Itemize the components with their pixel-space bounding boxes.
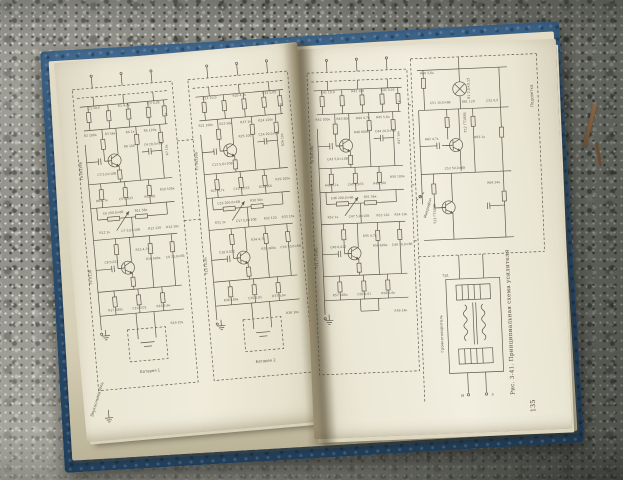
svg-text:R46 600к: R46 600к xyxy=(354,130,369,135)
svg-text:Т13 ГТ403Б: Т13 ГТ403Б xyxy=(432,203,437,225)
svg-text:R22 56к: R22 56к xyxy=(219,121,232,126)
svg-text:С47 5,0×10В: С47 5,0×10В xyxy=(349,214,370,219)
svg-text:R48 4,7к: R48 4,7к xyxy=(325,183,339,188)
svg-text:R44 4,7к: R44 4,7к xyxy=(356,116,370,121)
svg-text:R18 5,6к: R18 5,6к xyxy=(156,303,170,308)
svg-text:Батарея 2: Батарея 2 xyxy=(255,357,276,364)
svg-text:С12 0,05: С12 0,05 xyxy=(262,90,276,95)
svg-text:R62 4,7к: R62 4,7к xyxy=(425,137,439,142)
svg-text:R36 180к: R36 180к xyxy=(224,297,239,302)
right-page-schematic: Т8 МП39БТ11 ГТ108БС41 10,0R41 100С42 0,0… xyxy=(298,39,572,439)
svg-text:С4 20,0×6В: С4 20,0×6В xyxy=(144,141,163,147)
svg-text:Л1 2,5×0,15: Л1 2,5×0,15 xyxy=(466,78,471,100)
svg-text:С8 0,022: С8 0,022 xyxy=(104,259,118,264)
svg-text:R30 56к: R30 56к xyxy=(250,198,263,203)
svg-text:Т10 П13Б: Т10 П13Б xyxy=(203,257,209,276)
svg-text:R11 56к: R11 56к xyxy=(134,208,147,213)
svg-text:R41 100: R41 100 xyxy=(351,89,364,94)
svg-text:R63 1к: R63 1к xyxy=(474,135,485,139)
svg-text:Громкоговоритель: Громкоговоритель xyxy=(438,314,445,352)
svg-text:R35 600к: R35 600к xyxy=(261,246,276,251)
svg-text:С43 5,0×10В: С43 5,0×10В xyxy=(327,157,348,162)
svg-text:R49 560: R49 560 xyxy=(373,181,386,186)
svg-text:R12 1к: R12 1к xyxy=(99,230,110,235)
svg-text:С19 30,0×6В: С19 30,0×6В xyxy=(280,244,301,250)
svg-text:R55 4,7к: R55 4,7к xyxy=(363,233,377,238)
svg-text:Т9 П13Б: Т9 П13Б xyxy=(88,269,93,286)
svg-text:С17 5,0×10В: С17 5,0×10В xyxy=(236,217,257,223)
svg-text:R34 4,7к: R34 4,7к xyxy=(251,237,265,242)
svg-text:С2 0,05: С2 0,05 xyxy=(148,100,160,105)
svg-text:R52 1к: R52 1к xyxy=(327,215,338,219)
svg-text:Т12 ГТ108Б: Т12 ГТ108Б xyxy=(463,111,468,133)
svg-text:R17 180к: R17 180к xyxy=(108,307,123,312)
left-page-schematic: Батарея 1Т6 МП39БТ9 П13БС1 10,0R1 4,7кС2… xyxy=(54,42,330,442)
right-page: Т8 МП39БТ11 ГТ108БС41 10,0R41 100С42 0,0… xyxy=(298,39,572,439)
svg-text:R14 10к: R14 10к xyxy=(166,224,179,229)
svg-text:С1 10,0: С1 10,0 xyxy=(88,106,100,111)
svg-text:R21 100к: R21 100к xyxy=(198,123,213,128)
svg-text:R33 10к: R33 10к xyxy=(282,214,295,219)
svg-text:R10 100к: R10 100к xyxy=(160,186,175,191)
svg-text:R60 5,6к: R60 5,6к xyxy=(420,71,434,76)
svg-text:Подсветка: Подсветка xyxy=(529,84,535,107)
svg-text:R19 10к: R19 10к xyxy=(170,320,183,325)
twig-small xyxy=(595,142,602,166)
svg-text:R7 10к: R7 10к xyxy=(164,144,169,155)
svg-text:С41 10,0: С41 10,0 xyxy=(321,90,335,95)
svg-text:R13 120: R13 120 xyxy=(148,226,161,231)
svg-text:С14 20,0×6В: С14 20,0×6В xyxy=(258,131,279,137)
svg-text:С13 5,0×10В: С13 5,0×10В xyxy=(212,161,233,167)
svg-text:R24 120к: R24 120к xyxy=(258,117,273,122)
svg-text:Микрофон: Микрофон xyxy=(422,197,433,219)
svg-text:R28 560: R28 560 xyxy=(259,184,272,189)
svg-text:С51 10,0×6В: С51 10,0×6В xyxy=(430,100,451,105)
svg-text:С18 0,022: С18 0,022 xyxy=(219,249,235,254)
svg-text:R23 1к: R23 1к xyxy=(240,119,251,124)
svg-text:R31 1к: R31 1к xyxy=(215,220,226,225)
svg-text:R16 600к: R16 600к xyxy=(146,256,161,261)
svg-text:Звукосниматель: Звукосниматель xyxy=(89,381,105,418)
svg-text:R61 120: R61 120 xyxy=(462,99,475,104)
svg-text:Тр1: Тр1 xyxy=(441,273,449,277)
svg-text:С44 20,0×6В: С44 20,0×6В xyxy=(375,129,396,134)
svg-text:Т8 МП39Б: Т8 МП39Б xyxy=(310,145,315,165)
svg-text:Т11 ГТ108Б: Т11 ГТ108Б xyxy=(314,247,319,270)
svg-text:R58 5,6к: R58 5,6к xyxy=(381,291,395,296)
twig xyxy=(583,103,598,147)
svg-text:R8 4,7к: R8 4,7к xyxy=(96,198,108,203)
svg-text:З: З xyxy=(491,393,494,397)
svg-text:R9 560: R9 560 xyxy=(144,194,155,199)
svg-text:R29 100к: R29 100к xyxy=(275,176,290,181)
svg-text:С52 0,5: С52 0,5 xyxy=(486,98,498,103)
concrete-pavement: Батарея 1Т6 МП39БТ9 П13БС1 10,0R1 4,7кС2… xyxy=(0,0,623,480)
svg-text:R32 120: R32 120 xyxy=(264,216,277,221)
page-number: 135 xyxy=(529,399,538,412)
svg-text:М: М xyxy=(461,394,464,398)
svg-text:R57 180к: R57 180к xyxy=(333,293,348,298)
svg-text:R50 100к: R50 100к xyxy=(390,174,405,179)
svg-text:С7 5,0×10В: С7 5,0×10В xyxy=(121,227,140,233)
svg-text:R59 24к: R59 24к xyxy=(394,308,407,313)
svg-text:Т6 МП39Б: Т6 МП39Б xyxy=(79,161,85,181)
svg-text:Т7 МП39Б: Т7 МП39Б xyxy=(194,151,200,171)
svg-text:R42 100к: R42 100к xyxy=(315,117,330,122)
svg-text:R53 120: R53 120 xyxy=(376,213,389,218)
svg-text:R47 10к: R47 10к xyxy=(396,131,401,144)
svg-text:R4 1к: R4 1к xyxy=(126,130,135,135)
svg-text:R64 24к: R64 24к xyxy=(487,180,500,185)
svg-text:R43 60к: R43 60к xyxy=(336,116,349,121)
svg-text:R37 5,6к: R37 5,6к xyxy=(272,293,286,298)
svg-text:С53 50,0×6В: С53 50,0×6В xyxy=(445,166,466,171)
svg-text:R5 120к: R5 120к xyxy=(144,128,157,133)
left-page: Батарея 1Т6 МП39БТ9 П13БС1 10,0R1 4,7кС2… xyxy=(54,42,330,442)
svg-text:R3 56к: R3 56к xyxy=(105,131,116,136)
svg-text:R26 10к: R26 10к xyxy=(280,133,285,146)
svg-text:С15 0,033: С15 0,033 xyxy=(233,186,249,191)
svg-text:R15 4,7к: R15 4,7к xyxy=(135,247,149,252)
svg-text:С45 0,033: С45 0,033 xyxy=(348,182,364,187)
svg-text:С10 0,01: С10 0,01 xyxy=(132,305,146,310)
svg-text:R27 4,7к: R27 4,7к xyxy=(211,188,225,193)
svg-text:С3 5,0×10В: С3 5,0×10В xyxy=(97,171,116,177)
svg-text:С11 10,0: С11 10,0 xyxy=(202,95,216,100)
svg-text:R45 5,6к: R45 5,6к xyxy=(376,115,390,120)
svg-text:С6 200,0×6В: С6 200,0×6В xyxy=(103,210,124,216)
svg-text:С42 0,05: С42 0,05 xyxy=(381,88,395,93)
svg-text:R38 10к: R38 10к xyxy=(286,310,299,315)
svg-text:в: в xyxy=(397,100,401,102)
svg-text:С48 0,022: С48 0,022 xyxy=(330,245,346,250)
svg-text:С20 0,01: С20 0,01 xyxy=(248,295,262,300)
svg-text:С9 30,0×6В: С9 30,0×6В xyxy=(166,254,185,260)
svg-text:R51 56к: R51 56к xyxy=(364,194,377,199)
svg-text:R6 100: R6 100 xyxy=(124,144,135,149)
svg-text:R20 4,7к: R20 4,7к xyxy=(232,93,246,98)
svg-text:R2 100к: R2 100к xyxy=(84,133,97,138)
svg-text:С46 200,0×6В: С46 200,0×6В xyxy=(331,195,354,200)
svg-text:R56 600к: R56 600к xyxy=(373,243,388,248)
svg-text:Батарея 1: Батарея 1 xyxy=(140,367,161,374)
svg-text:С49 30,0×6В: С49 30,0×6В xyxy=(392,242,413,247)
svg-text:С50 0,01: С50 0,01 xyxy=(357,292,371,297)
svg-text:С16 200,0×6В: С16 200,0×6В xyxy=(217,200,240,206)
svg-text:R54 10к: R54 10к xyxy=(394,212,407,217)
svg-text:С5 0,033: С5 0,033 xyxy=(119,196,133,201)
svg-text:R25 100: R25 100 xyxy=(238,133,251,138)
